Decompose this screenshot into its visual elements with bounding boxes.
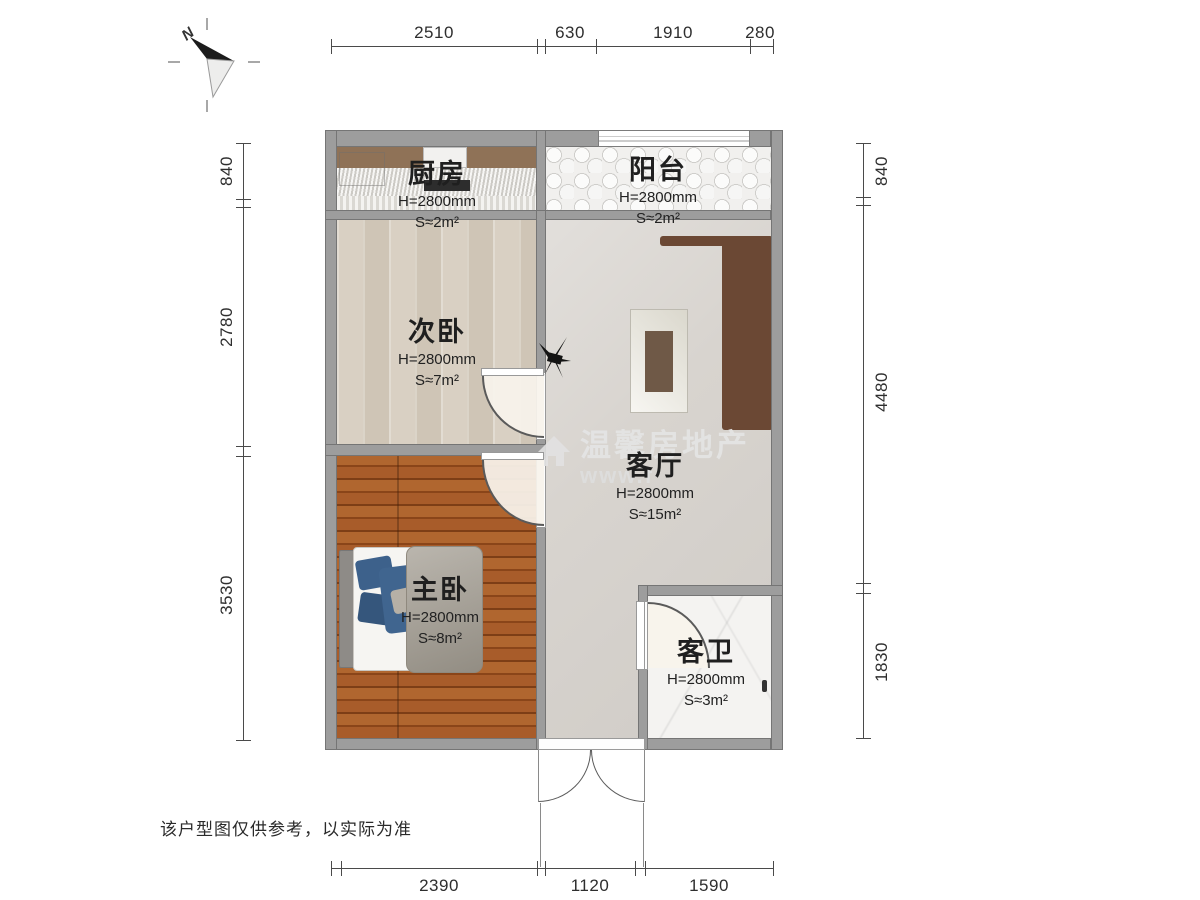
dim-bottom-2: 1120 [571,876,610,896]
dim-top-1: 2510 [414,23,454,43]
balcony-window [598,130,750,147]
floorplan-canvas: N [0,0,1200,900]
room-label-living-room: 客厅 H=2800mm S≈15m² [616,452,694,525]
kitchen-sink-sketch [339,152,385,186]
north-compass-icon: N [160,8,265,120]
room-area: S≈2m² [619,210,697,229]
dim-line-right [863,143,864,738]
room-height: H=2800mm [401,609,479,628]
wall-right [771,130,783,750]
dim-bottom-3: 1590 [689,876,729,896]
disclaimer-text: 该户型图仅供参考，以实际为准 [160,815,412,840]
dim-top-3: 1910 [653,23,693,43]
wall-kitchen-south [325,210,771,220]
room-name: 阳台 [619,156,697,186]
plant-icon [538,334,572,380]
room-name: 客卫 [667,638,745,668]
room-label-balcony: 阳台 H=2800mm S≈2m² [619,156,697,229]
dim-left-1: 840 [217,156,237,186]
room-height: H=2800mm [398,193,476,212]
entry-door-swing-right [591,750,645,802]
room-height: H=2800mm [616,485,694,504]
wall-left [325,130,337,750]
dim-right-2: 4480 [872,372,892,412]
dim-left-3: 3530 [217,575,237,615]
coffee-table-top [645,331,673,392]
room-name: 厨房 [398,160,476,190]
room-area: S≈15m² [616,506,694,525]
room-height: H=2800mm [398,351,476,370]
room-label-bathroom: 客卫 H=2800mm S≈3m² [667,638,745,711]
dim-bottom-1: 2390 [419,876,459,896]
second-bedroom-door-leaf [481,368,544,376]
dim-top-2: 630 [555,23,585,43]
room-area: S≈3m² [667,692,745,711]
room-area: S≈7m² [398,372,476,391]
room-name: 客厅 [616,452,694,482]
dim-line-left [243,143,244,740]
dim-line-top [331,46,773,47]
room-name: 主卧 [401,576,479,606]
wall-kitchen-balcony-divider [536,130,546,220]
dim-line-bottom [331,868,773,869]
room-label-master-bedroom: 主卧 H=2800mm S≈8m² [401,576,479,649]
room-label-second-bedroom: 次卧 H=2800mm S≈7m² [398,318,476,391]
bathroom-door-leaf [636,601,645,670]
dim-top-4: 280 [745,23,775,43]
room-area: S≈8m² [401,630,479,649]
entry-doorway [538,738,645,750]
room-name: 次卧 [398,318,476,348]
master-bedroom-door-leaf [481,452,544,460]
room-height: H=2800mm [667,671,745,690]
bathroom-fixture [762,680,767,692]
dim-left-2: 2780 [217,307,237,347]
sofa-frame-top [660,236,730,246]
room-area: S≈2m² [398,214,476,233]
dim-right-3: 1830 [872,642,892,682]
room-height: H=2800mm [619,189,697,208]
entry-door-swing-left [538,750,591,802]
kitchen-cabinet-right [467,147,536,168]
wall-bathroom-top [638,585,783,596]
room-label-kitchen: 厨房 H=2800mm S≈2m² [398,160,476,233]
sofa-frame [722,236,773,430]
dim-right-1: 840 [872,156,892,186]
